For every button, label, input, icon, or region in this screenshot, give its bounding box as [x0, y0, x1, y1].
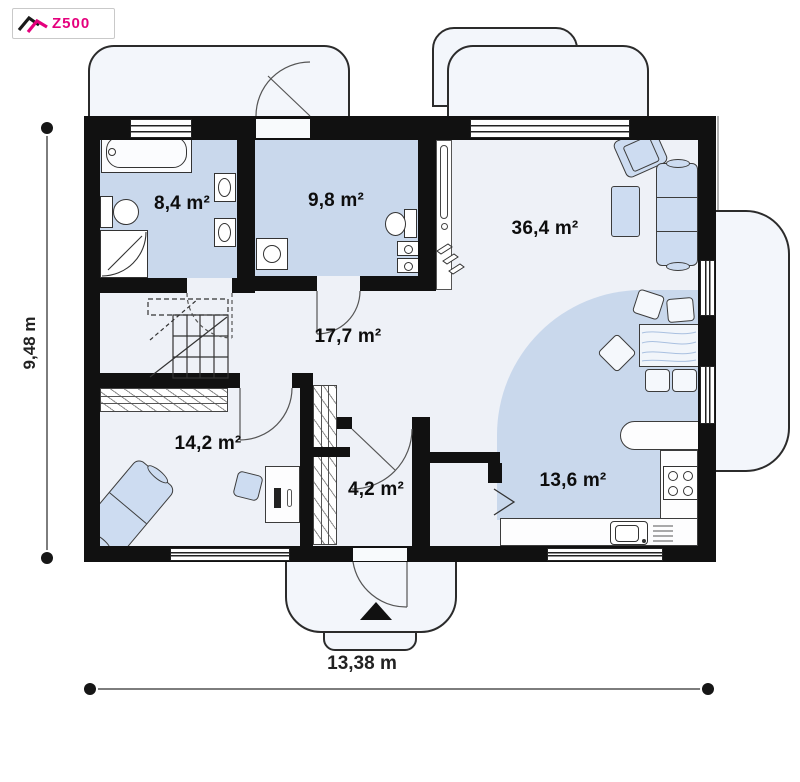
- window-kitchen: [547, 548, 663, 561]
- boiler-icon: [397, 241, 419, 256]
- wall-bathroom-bottom: [232, 278, 255, 293]
- computer-icon: [287, 489, 292, 507]
- radiator-icon: [436, 140, 452, 290]
- hallway-area-label: 17,7 m²: [315, 326, 382, 348]
- coffee-table-icon: [611, 186, 640, 237]
- window-dining-upper: [700, 260, 715, 316]
- wall-entry-left: [300, 373, 313, 546]
- z500-logo: Z500: [12, 8, 115, 39]
- washer-drum: [263, 245, 281, 263]
- sofa-divider: [109, 492, 147, 524]
- boiler-dial: [404, 245, 413, 254]
- wall-utility-right: [418, 140, 436, 291]
- kitchen-peninsula-counter: [620, 421, 699, 450]
- wall-outer-left: [84, 116, 100, 562]
- dining-chair-icon: [666, 297, 695, 323]
- stove-icon: [663, 466, 698, 500]
- horizontal-dimension-line: [90, 688, 708, 690]
- boiler-icon: [397, 258, 419, 273]
- logo-text: Z500: [52, 15, 90, 32]
- kitchen-area-label: 13,6 m²: [540, 470, 607, 492]
- wall-stub: [300, 447, 350, 457]
- monitor-icon: [274, 488, 281, 508]
- wall-kitchen-divider: [430, 452, 500, 463]
- roof-icon: [17, 13, 49, 34]
- wall-entry-right: [412, 417, 430, 546]
- sofa-armrest: [666, 159, 690, 168]
- burner: [683, 471, 693, 481]
- shower-icon: [100, 230, 148, 278]
- dining-table-icon: [639, 324, 699, 367]
- living-area-label: 36,4 m²: [512, 218, 579, 240]
- vertical-dimension-line: [46, 128, 48, 558]
- front-door-opening: [353, 548, 407, 561]
- sofa-divider: [657, 197, 697, 198]
- floor-plan: 8,4 m² 9,8 m² 36,4 m² 17,7 m² 14,2 m² 4,…: [0, 0, 800, 782]
- bathroom-area-label: 8,4 m²: [154, 193, 210, 215]
- radiator-panel: [440, 145, 448, 219]
- boiler-dial: [404, 262, 413, 271]
- wall-utility-bottom: [255, 276, 317, 291]
- dimension-end-marker: [41, 122, 53, 134]
- wall-entry-top: [337, 417, 352, 429]
- toilet-bowl: [113, 199, 139, 225]
- window-dining-lower: [700, 366, 715, 424]
- radiator-valve: [441, 223, 448, 230]
- sofa-armrest: [666, 262, 690, 271]
- window-bedroom: [170, 548, 290, 561]
- sofa-divider: [657, 231, 697, 232]
- horizontal-dimension-label: 13,38 m: [327, 653, 397, 675]
- window-living: [470, 119, 630, 138]
- dimension-end-marker: [41, 552, 53, 564]
- terrace-right: [714, 210, 790, 472]
- wall-bathroom-bottom: [100, 278, 187, 293]
- toilet-icon: [100, 196, 113, 228]
- sink-faucet: [642, 539, 646, 543]
- burner: [668, 486, 678, 496]
- sink-basin: [218, 223, 231, 242]
- dimension-end-marker: [84, 683, 96, 695]
- dining-chair-icon: [645, 369, 670, 392]
- armchair-seat: [622, 135, 660, 172]
- bathtub-basin: [106, 136, 187, 168]
- wall-bathroom-right: [237, 140, 255, 293]
- bedroom-area-label: 14,2 m²: [175, 433, 242, 455]
- toilet-bowl: [385, 212, 406, 236]
- vertical-dimension-label: 9,48 m: [20, 317, 40, 370]
- wall-bedroom-top: [100, 373, 240, 388]
- bathtub-faucet: [108, 148, 116, 156]
- wall-outer-right: [698, 116, 716, 562]
- kitchen-counter-bottom: [500, 518, 698, 546]
- kitchen-sink-icon: [610, 521, 648, 545]
- entry-wardrobe-icon: [313, 385, 337, 545]
- desk-icon: [265, 466, 300, 523]
- entrance-arrow-icon: [360, 602, 392, 620]
- window-bathroom: [130, 119, 192, 138]
- dining-chair-icon: [672, 369, 697, 392]
- sink-icon: [214, 218, 236, 247]
- entrance-porch: [285, 556, 457, 633]
- utility-exterior-door-opening: [256, 119, 310, 138]
- wardrobe-icon: [100, 388, 228, 412]
- utility-area-label: 9,8 m²: [308, 190, 364, 212]
- washing-machine-icon: [256, 238, 288, 270]
- sink-basin: [615, 525, 639, 542]
- sink-icon: [214, 173, 236, 202]
- burner: [683, 486, 693, 496]
- sink-basin: [218, 178, 231, 197]
- burner: [668, 471, 678, 481]
- dimension-end-marker: [702, 683, 714, 695]
- entry-area-label: 4,2 m²: [348, 479, 404, 501]
- sofa-icon: [656, 163, 698, 266]
- wall-kitchen-divider: [488, 463, 502, 483]
